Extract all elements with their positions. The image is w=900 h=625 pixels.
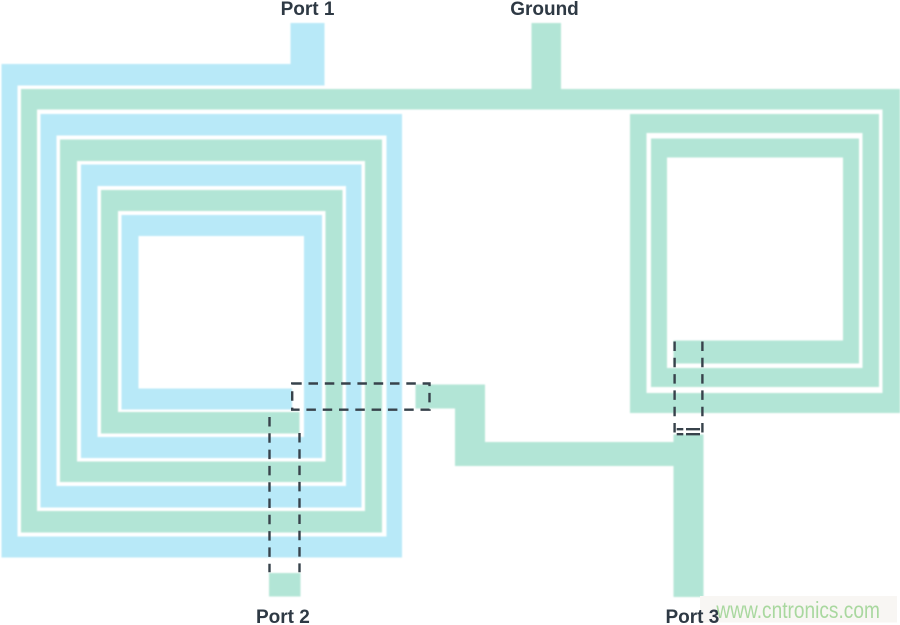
svg-text:www.cntronics.com: www.cntronics.com [716,597,880,623]
svg-text:Ground: Ground [510,0,579,20]
svg-text:Port 1: Port 1 [281,0,335,20]
svg-text:Port 2: Port 2 [256,607,310,625]
svg-text:Port 3: Port 3 [665,607,719,625]
